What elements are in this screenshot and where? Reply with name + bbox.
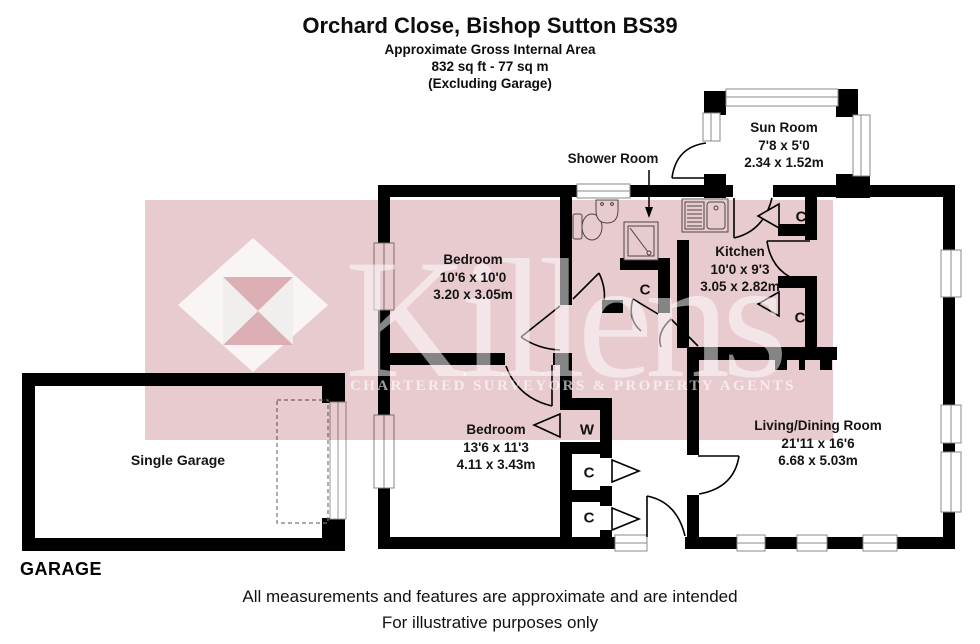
room-label-shower-room: Shower Room — [568, 150, 659, 168]
room-dims-imperial: 13'6 x 11'3 — [457, 439, 536, 457]
room-dims-imperial: 10'6 x 10'0 — [433, 269, 513, 287]
cupboard-letter: C — [795, 310, 806, 327]
room-label-sun-room: Sun Room 7'8 x 5'0 2.34 x 1.52m — [744, 119, 824, 172]
room-label-kitchen: Kitchen 10'0 x 9'3 3.05 x 2.82m — [700, 243, 780, 296]
room-name: Living/Dining Room — [754, 417, 882, 435]
room-name: Bedroom — [457, 421, 536, 439]
disclaimer-line1: All measurements and features are approx… — [242, 587, 737, 607]
room-name: Bedroom — [433, 251, 513, 269]
disclaimer-line2: For illustrative purposes only — [382, 613, 598, 633]
room-name: Shower Room — [568, 150, 659, 168]
room-label-bedroom2: Bedroom 13'6 x 11'3 4.11 x 3.43m — [457, 421, 536, 474]
labels-layer: Orchard Close, Bishop Sutton BS39 Approx… — [0, 0, 980, 644]
room-dims-metric: 4.11 x 3.43m — [457, 456, 536, 474]
area-label: Approximate Gross Internal Area — [384, 42, 595, 57]
room-dims-imperial: 10'0 x 9'3 — [700, 261, 780, 279]
room-dims-imperial: 21'11 x 16'6 — [754, 435, 882, 453]
room-name: Kitchen — [700, 243, 780, 261]
area-value: 832 sq ft - 77 sq m — [431, 59, 548, 74]
cupboard-letter: C — [584, 465, 595, 482]
cupboard-letter: C — [796, 209, 807, 226]
room-label-bedroom1: Bedroom 10'6 x 10'0 3.20 x 3.05m — [433, 251, 513, 304]
room-dims-metric: 3.05 x 2.82m — [700, 278, 780, 296]
wardrobe-letter: W — [580, 422, 594, 439]
room-label-garage: Single Garage — [131, 452, 225, 468]
room-dims-metric: 6.68 x 5.03m — [754, 452, 882, 470]
room-name: Sun Room — [744, 119, 824, 137]
area-note: (Excluding Garage) — [428, 76, 552, 91]
room-dims-imperial: 7'8 x 5'0 — [744, 137, 824, 155]
page-title: Orchard Close, Bishop Sutton BS39 — [302, 13, 677, 39]
room-label-living-dining: Living/Dining Room 21'11 x 16'6 6.68 x 5… — [754, 417, 882, 470]
room-dims-metric: 2.34 x 1.52m — [744, 154, 824, 172]
cupboard-letter: C — [584, 510, 595, 527]
cupboard-letter: C — [640, 282, 651, 299]
room-dims-metric: 3.20 x 3.05m — [433, 286, 513, 304]
floorplan-page: Killens CHARTERED SURVEYORS & PROPERTY A… — [0, 0, 980, 644]
garage-caption: GARAGE — [20, 559, 102, 580]
